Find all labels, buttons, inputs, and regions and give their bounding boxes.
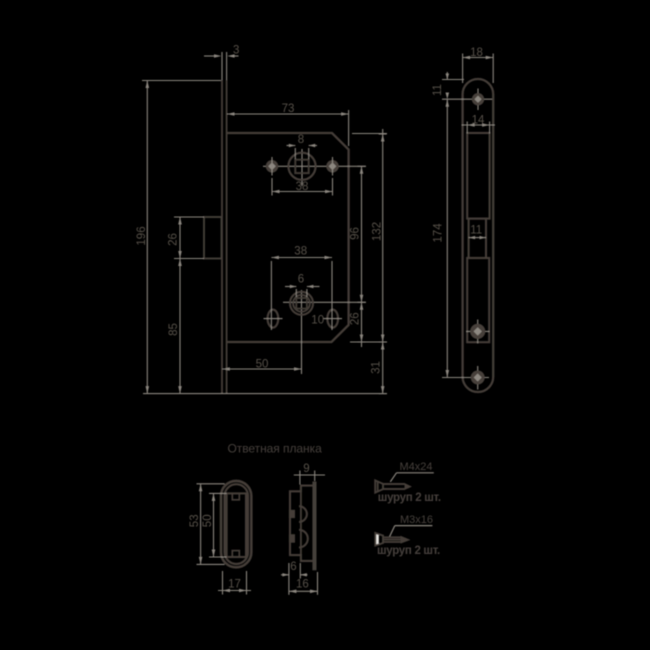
svg-text:132: 132 [371, 222, 383, 241]
svg-text:196: 196 [136, 226, 148, 245]
svg-text:10: 10 [311, 315, 324, 327]
svg-text:шуруп 2 шт.: шуруп 2 шт. [378, 492, 441, 504]
svg-text:11: 11 [470, 225, 482, 237]
svg-text:38: 38 [294, 246, 307, 258]
svg-text:38: 38 [296, 181, 309, 193]
svg-text:26: 26 [168, 233, 180, 246]
svg-text:9: 9 [303, 463, 309, 475]
svg-text:73: 73 [282, 103, 295, 115]
svg-text:31: 31 [371, 361, 383, 374]
svg-text:53: 53 [189, 514, 201, 527]
svg-text:М4х24: М4х24 [400, 461, 433, 473]
svg-text:6: 6 [298, 274, 304, 286]
svg-text:26: 26 [350, 312, 362, 325]
svg-text:16: 16 [296, 579, 309, 591]
svg-text:М3х16: М3х16 [400, 514, 433, 526]
svg-text:174: 174 [433, 223, 445, 243]
svg-text:18: 18 [470, 47, 483, 59]
svg-text:50: 50 [202, 514, 214, 527]
svg-text:8: 8 [298, 134, 304, 146]
svg-text:11: 11 [432, 84, 444, 96]
svg-text:Ответная планка: Ответная планка [228, 442, 323, 456]
svg-text:шуруп 2 шт.: шуруп 2 шт. [377, 545, 440, 557]
svg-text:6: 6 [290, 561, 296, 573]
svg-text:85: 85 [168, 323, 180, 336]
svg-text:3: 3 [233, 45, 239, 57]
svg-text:17: 17 [228, 579, 241, 591]
svg-text:50: 50 [256, 359, 269, 371]
svg-text:96: 96 [349, 227, 361, 240]
svg-text:14: 14 [472, 115, 485, 127]
